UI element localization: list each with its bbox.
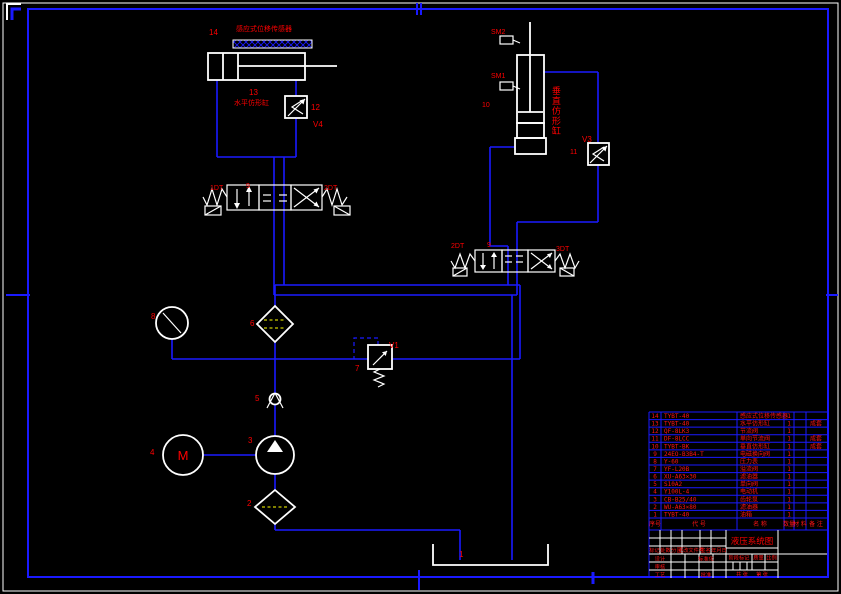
bom-cell: 电磁换向阀 — [740, 450, 770, 458]
spring — [451, 254, 475, 268]
bom-cell: 1 — [787, 481, 791, 488]
label-sm2: SM2 — [491, 29, 506, 36]
bom-cell: YF-L20B — [664, 466, 690, 473]
bom-cell: 1 — [787, 466, 791, 473]
tb-mark: 标记 — [649, 546, 659, 554]
bom-header-note: 备 注 — [809, 520, 823, 528]
label-4: 4 — [150, 448, 155, 457]
bom-cell: 单向阀 — [740, 480, 758, 488]
bom-cell: 溢流阀 — [740, 465, 758, 473]
bom-cell: 滤油器 — [740, 473, 758, 481]
spring — [374, 369, 384, 387]
bom-cell: 1 — [653, 511, 657, 518]
bom-cell: 单向节流阀 — [740, 435, 770, 443]
bom-cell: 油箱 — [740, 510, 752, 518]
bom-cell: 1 — [787, 436, 791, 443]
label-14: 14 — [209, 28, 218, 37]
bom-cell: 12 — [651, 428, 659, 435]
label-1dt: 1DT — [210, 185, 224, 192]
tb-sheets-total: 共 张 — [736, 570, 749, 578]
bom-cell: Y-60 — [664, 458, 679, 465]
label-7: 7 — [355, 364, 360, 373]
bom-cell: 2 — [653, 504, 657, 511]
bom-header-name: 名 称 — [753, 520, 767, 528]
bom-cell: 1 — [787, 511, 791, 518]
hydraulic-schematic: 14 感应式位移传感器 13 水平仿形缸 12 V4 1DT 9 2DT SM2… — [0, 0, 841, 594]
pressure-gauge — [156, 307, 188, 339]
bom-cell: 感应式位移传感器 — [740, 412, 788, 420]
suction-filter — [255, 490, 295, 524]
bom-cell: 1 — [787, 443, 791, 450]
bom-cell: 5 — [653, 481, 657, 488]
bom-cell: QF-8LK3 — [664, 428, 690, 435]
label-9-left: 9 — [246, 183, 250, 190]
bom-cell: 1 — [787, 451, 791, 458]
bom-cell: 水平仿形缸 — [740, 420, 770, 428]
corner-mark-inner — [12, 9, 21, 20]
tb-approve: 批准 — [701, 571, 711, 579]
bom-cell: 1 — [787, 474, 791, 481]
corner-mark — [7, 4, 21, 20]
bom-cell: 8 — [653, 458, 657, 465]
spring — [555, 254, 579, 268]
label-2dt-right: 2DT — [451, 243, 465, 250]
bom-cell: 14 — [651, 413, 659, 420]
label-5: 5 — [255, 394, 260, 403]
tb-date: 年月日 — [711, 546, 727, 554]
bom-rows: 14TYBT-40感应式位移传感器113TYBT-40水平仿形缸1成套12QF-… — [649, 412, 827, 530]
bom-cell: 13 — [651, 421, 659, 428]
tb-stage-mark: 阶段标记 — [729, 554, 750, 562]
bom-cell: 1 — [787, 496, 791, 503]
cad-drawing-canvas: 14 感应式位移传感器 13 水平仿形缸 12 V4 1DT 9 2DT SM2… — [0, 0, 841, 594]
label-2: 2 — [247, 499, 252, 508]
vertical-cylinder — [500, 22, 546, 154]
motor-m-letter: M — [178, 448, 189, 463]
label-11: 11 — [570, 149, 577, 156]
label-8: 8 — [151, 312, 156, 321]
bom-cell: WU-A63×80 — [664, 504, 697, 511]
tb-scale: 比例 — [766, 554, 776, 562]
bom-header-code: 代 号 — [692, 520, 706, 528]
bom-cell: TYBT-BK — [664, 443, 690, 450]
tb-count: 处数 — [660, 546, 671, 554]
bom-cell: 成套 — [810, 420, 822, 428]
tb-signature: 签名 — [700, 546, 710, 554]
bom-cell: DF-8LCC — [664, 436, 690, 443]
label-10: 10 — [482, 102, 490, 109]
bom-cell: 齿轮泵 — [740, 495, 758, 503]
label-sensor-title: 感应式位移传感器 — [236, 24, 292, 33]
bom-cell: 滤油器 — [740, 503, 758, 511]
label-1: 1 — [459, 550, 464, 559]
bom-cell: 节流阀 — [740, 427, 758, 435]
tb-sheet-no: 第 张 — [756, 570, 769, 578]
tb-process: 工艺 — [655, 572, 665, 579]
label-12: 12 — [311, 103, 320, 112]
bom-cell: 6 — [653, 474, 657, 481]
bom-cell: 4 — [653, 489, 657, 496]
bom-cell: 9 — [653, 451, 657, 458]
tb-audit: 审核 — [655, 563, 665, 571]
bom-cell: TYBT-40 — [664, 511, 690, 518]
bom-header: 序号 代 号 名 称 数量 材 料 备 注 — [649, 520, 823, 528]
tb-standardization: 标准化 — [698, 555, 714, 563]
displacement-sensor-bar — [233, 40, 312, 48]
bom-cell: TYBT-40 — [664, 413, 690, 420]
tb-design: 设计 — [655, 555, 665, 563]
bom-cell: 电动机 — [740, 488, 758, 496]
label-v4: V4 — [313, 120, 323, 129]
bom-header-seq: 序号 — [649, 520, 661, 528]
hydraulic-pipes — [172, 72, 598, 560]
bom-cell: 压力表 — [740, 457, 758, 465]
label-3dt: 3DT — [556, 246, 570, 253]
bom-cell: S10A2 — [664, 481, 682, 488]
bom-cell: 3 — [653, 496, 657, 503]
label-2dt-left: 2DT — [324, 185, 338, 192]
bom-cell: 24EO-B3B4-T — [664, 451, 704, 458]
label-9-right: 9 — [487, 242, 491, 249]
horizontal-cylinder — [208, 40, 337, 80]
throttle-valve-v4 — [285, 96, 307, 118]
bom-cell: 1 — [787, 413, 791, 420]
bom-cell: XU-A63×30 — [664, 474, 697, 481]
relief-valve-v1 — [368, 345, 392, 387]
bom-cell: 1 — [787, 428, 791, 435]
bom-cell: 1 — [787, 504, 791, 511]
bom-cell: 垂直仿形缸 — [740, 442, 770, 450]
bom-cell: CB-B25/40 — [664, 496, 697, 503]
vertical-cylinder-label: 垂直仿形缸 — [550, 86, 560, 136]
title-block: 液压系统图 标记 处数 分区 更改文件号 签名 年月日 设计 标准化 审核 工艺… — [649, 530, 827, 579]
label-cyl13-name: 水平仿形缸 — [234, 98, 269, 107]
directional-valve-right — [451, 250, 579, 276]
label-3: 3 — [248, 436, 253, 445]
label-13: 13 — [249, 88, 258, 97]
sensor-sm2 — [500, 36, 520, 44]
bom-cell: TYBT-40 — [664, 421, 690, 428]
oil-tank — [433, 544, 548, 565]
bom-cell: 1 — [787, 458, 791, 465]
bom-header-material: 材 料 — [793, 520, 807, 528]
bom-cell: 11 — [651, 436, 659, 443]
pressure-filter — [257, 306, 293, 342]
tb-weight: 质量 — [753, 554, 763, 562]
bom-cell: 成套 — [810, 435, 822, 443]
bom-cell: Y100L-4 — [664, 489, 690, 496]
bom-cell: 成套 — [810, 442, 822, 450]
throttle-valve-v3 — [588, 143, 609, 165]
label-sm1: SM1 — [491, 73, 506, 80]
bom-cell: 1 — [787, 489, 791, 496]
label-v1: V1 — [389, 341, 399, 350]
bom-cell: 7 — [653, 466, 657, 473]
label-v3: V3 — [582, 135, 592, 144]
bom-cell: 10 — [651, 443, 659, 450]
label-6: 6 — [250, 319, 255, 328]
drawing-title: 液压系统图 — [731, 536, 774, 546]
bom-cell: 1 — [787, 421, 791, 428]
pump — [256, 436, 294, 474]
